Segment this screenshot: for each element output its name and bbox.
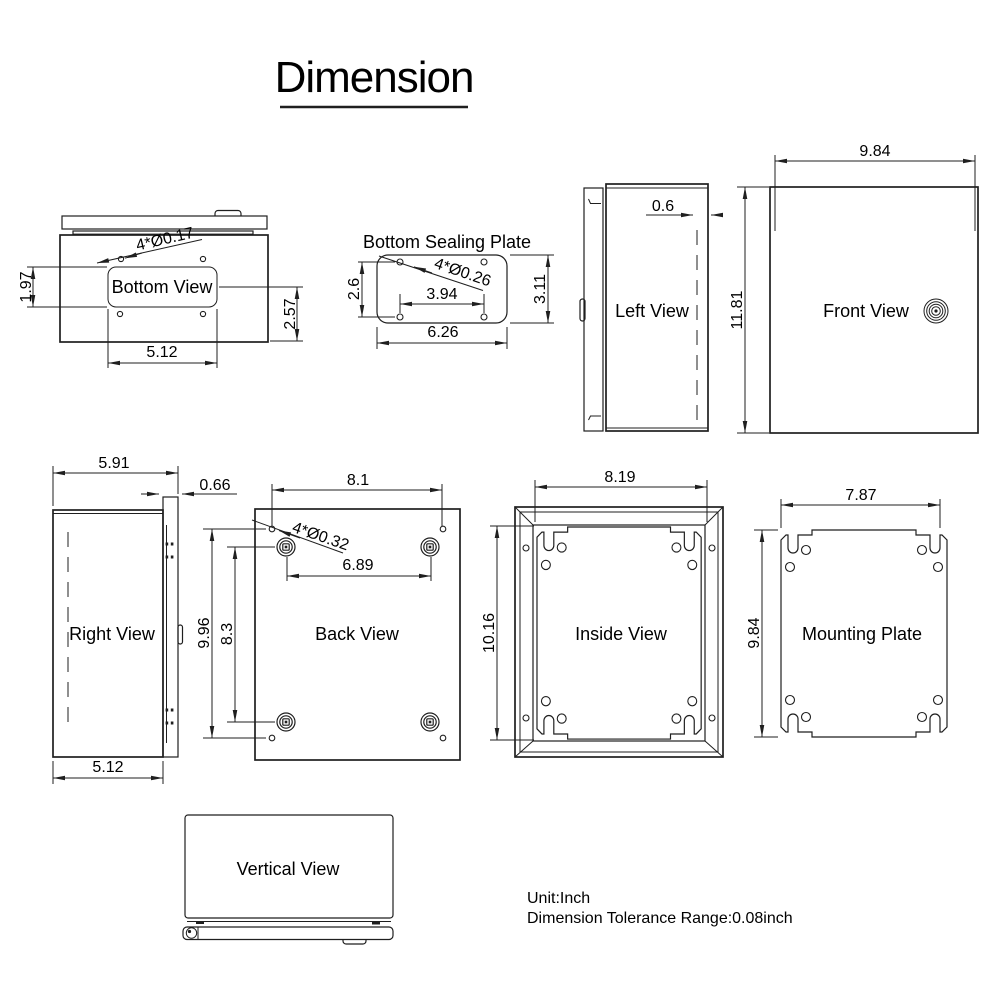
dim-2-57: 2.57 [219, 287, 303, 341]
svg-text:2.57: 2.57 [282, 298, 299, 329]
drawing-canvas: Dimension Bottom View 4*Ø0.17 1.97 2.57 … [0, 0, 1000, 1000]
svg-text:10.16: 10.16 [481, 613, 498, 653]
dim-5-91: 5.91 [53, 455, 178, 506]
svg-text:3.94: 3.94 [426, 286, 457, 303]
bottom-view-label: Bottom View [112, 277, 214, 297]
unit-note: Unit:Inch [527, 890, 590, 907]
dim-0-6: 0.6 [646, 198, 723, 215]
left-view-hinge-strip [584, 188, 603, 431]
mounting-plate-label: Mounting Plate [802, 624, 922, 644]
svg-text:2.6: 2.6 [346, 278, 363, 300]
svg-text:6.89: 6.89 [342, 557, 373, 574]
page-title: Dimension [275, 53, 474, 102]
svg-text:8.19: 8.19 [604, 469, 635, 486]
dim-10-16: 10.16 [481, 526, 534, 740]
dim-11-81: 11.81 [729, 187, 769, 433]
dim-6-26: 6.26 [377, 324, 507, 349]
vertical-view: Vertical View [183, 815, 393, 944]
right-view-latch [178, 625, 183, 644]
left-view: Left View 0.6 [580, 184, 723, 431]
dim-5-12-right: 5.12 [53, 759, 163, 784]
back-view-label: Back View [315, 624, 400, 644]
dim-3-11: 3.11 [510, 255, 554, 323]
svg-text:3.11: 3.11 [532, 274, 549, 304]
bottom-sealing-plate: Bottom Sealing Plate 4*Ø0.26 2.6 3.11 3.… [346, 232, 554, 349]
dim-5-12-bottom: 5.12 [108, 309, 217, 368]
inside-view-label: Inside View [575, 624, 668, 644]
dim-1-97: 1.97 [18, 267, 107, 307]
front-view-label: Front View [823, 301, 910, 321]
dim-8-1: 8.1 [272, 472, 442, 526]
front-view: Front View 9.84 11.81 [729, 143, 978, 433]
leader-arrow [414, 267, 432, 273]
bottom-view-lid [62, 216, 267, 229]
svg-text:7.87: 7.87 [845, 487, 876, 504]
dimension-drawing: Dimension Bottom View 4*Ø0.17 1.97 2.57 … [0, 0, 1000, 1000]
dim-3-94: 3.94 [400, 286, 484, 313]
screw-boss [277, 713, 295, 731]
footer-notes: Unit:Inch Dimension Tolerance Range:0.08… [527, 890, 793, 927]
screw-boss [277, 538, 295, 556]
bottom-sealing-plate-title: Bottom Sealing Plate [363, 232, 531, 252]
dim-8-19: 8.19 [535, 469, 707, 522]
svg-text:9.84: 9.84 [859, 143, 890, 160]
tolerance-note: Dimension Tolerance Range:0.08inch [527, 910, 793, 927]
hinge-knob [186, 928, 196, 938]
page-header: Dimension [275, 53, 474, 107]
svg-text:8.1: 8.1 [347, 472, 369, 489]
svg-text:11.81: 11.81 [729, 290, 746, 329]
svg-text:6.26: 6.26 [427, 324, 458, 341]
dim-9-84-plate: 9.84 [746, 530, 778, 737]
hinge-hooks [589, 199, 602, 420]
svg-text:0.66: 0.66 [199, 477, 230, 494]
vertical-view-label: Vertical View [237, 859, 341, 879]
screw-boss [421, 538, 439, 556]
svg-text:9.84: 9.84 [746, 617, 763, 648]
back-view-holes-note: 4*Ø0.32 [290, 519, 351, 554]
svg-text:9.96: 9.96 [196, 617, 213, 648]
back-view: Back View 4*Ø0.32 8.1 6.89 9.96 8.3 [196, 472, 460, 760]
dim-7-87: 7.87 [781, 487, 940, 528]
vertical-view-body-strip [183, 927, 393, 940]
lock-icon [924, 299, 948, 323]
dim-6-89: 6.89 [287, 557, 431, 581]
svg-text:8.3: 8.3 [219, 623, 236, 645]
bottom-tab [343, 940, 366, 945]
screw-boss [421, 713, 439, 731]
right-view-door-strip [163, 497, 178, 757]
dim-0-66: 0.66 [141, 477, 237, 494]
bottom-view: Bottom View 4*Ø0.17 1.97 2.57 5.12 [18, 211, 303, 369]
right-view-label: Right View [69, 624, 156, 644]
inside-view: Inside View 8.19 10.16 [481, 469, 723, 757]
dim-8-3: 8.3 [219, 547, 275, 722]
bottom-view-latch [215, 211, 241, 217]
dim-2-6: 2.6 [346, 262, 395, 317]
left-view-label: Left View [615, 301, 690, 321]
mounting-plate: Mounting Plate 7.87 9.84 [746, 487, 947, 737]
svg-text:0.6: 0.6 [652, 198, 674, 215]
svg-text:5.12: 5.12 [146, 344, 177, 361]
svg-text:1.97: 1.97 [18, 271, 35, 302]
svg-text:5.91: 5.91 [98, 455, 129, 472]
svg-text:5.12: 5.12 [92, 759, 123, 776]
